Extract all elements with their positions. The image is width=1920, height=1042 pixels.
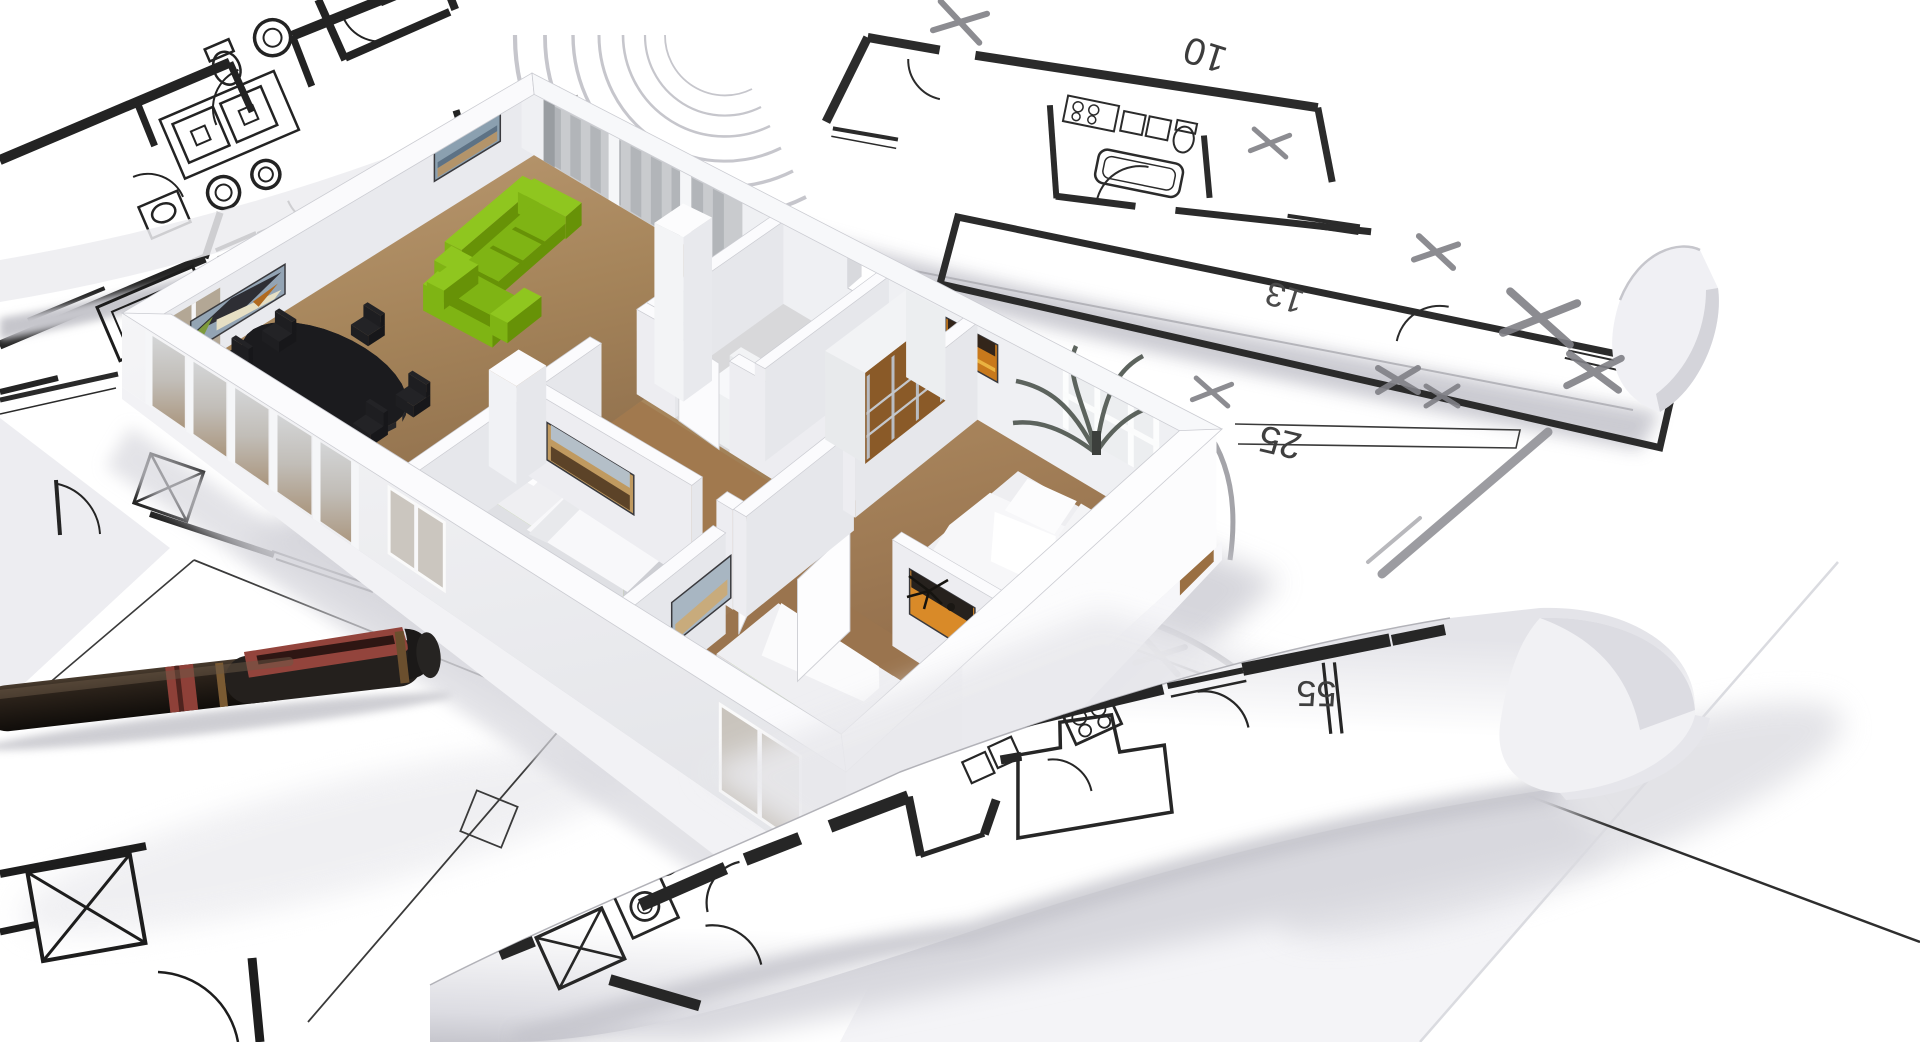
- svg-text:55: 55: [1296, 673, 1336, 714]
